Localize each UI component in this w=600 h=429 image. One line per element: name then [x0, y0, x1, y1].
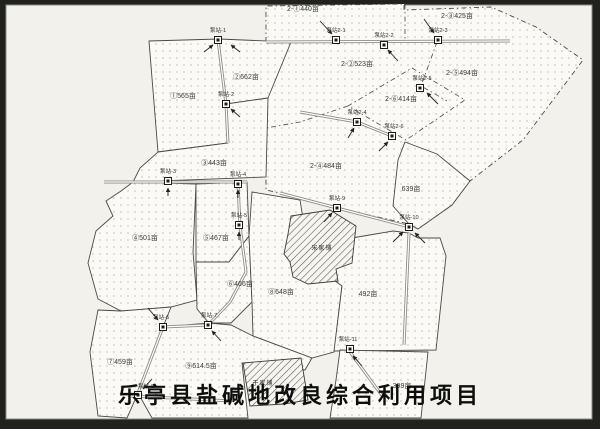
parcel-8-label: ⑧648亩 [268, 287, 294, 296]
pump-station-9-label: 泵站-9 [329, 194, 345, 202]
parcel-9-label: ⑨614.5亩 [185, 361, 217, 370]
pump-station-10-label: 泵站-10 [399, 213, 418, 221]
parcel-2-4-label: 2-④484亩 [310, 161, 342, 170]
parcel-2-5-label: 2-⑤494亩 [446, 68, 478, 77]
pump-station-6-label: 泵站-6 [153, 313, 169, 321]
pump-station-2-2-label: 泵站2-2 [374, 31, 393, 39]
parcel-2-1-label: 2-①440亩 [287, 4, 319, 13]
pump-station-1-label: 泵站-1 [210, 26, 226, 34]
parcel-3-label: ③443亩 [201, 158, 227, 167]
parcel-1-label: ①565亩 [170, 91, 196, 100]
pump-station-2-6-label: 泵站2-6 [384, 122, 403, 130]
parcel-639-label: 639亩 [402, 184, 421, 193]
land-improvement-map: 泵站-1 泵站-2 泵站-3 泵站-4 泵站-5 泵站-6 泵站-7 泵站-8 … [0, 0, 600, 429]
parcel-2-3-label: 2-③425亩 [441, 11, 473, 20]
village-songjiapu-label: 宋家铺 [311, 244, 332, 252]
pump-station-11-label: 泵站-11 [339, 335, 358, 343]
page-title: 乐亭县盐碱地改良综合利用项目 [118, 383, 482, 408]
pump-station-2-5-label: 泵站2-5 [412, 74, 431, 82]
pump-station-2-1-label: 泵站2-1 [326, 26, 345, 34]
pump-station-4-label: 泵站-4 [230, 170, 246, 178]
parcel-7-label: ⑦459亩 [107, 357, 133, 366]
parcel-5-label: ⑤467亩 [203, 233, 229, 242]
parcel-6-label: ⑥466亩 [227, 279, 253, 288]
parcel-2-label: ②662亩 [233, 72, 259, 81]
parcel-2-2-label: 2-②523亩 [341, 59, 373, 68]
parcel-4-label: ④501亩 [132, 233, 158, 242]
pump-station-2-3-label: 泵站2-3 [428, 26, 447, 34]
pump-station-2-label: 泵站-2 [218, 90, 234, 98]
pump-station-3-label: 泵站-3 [160, 167, 176, 175]
pump-station-5-label: 泵站-5 [231, 211, 247, 219]
parcel-492-label: 492亩 [359, 289, 378, 298]
parcel-2-6-label: 2-⑥414亩 [385, 94, 417, 103]
pump-station-7-label: 泵站-7 [201, 311, 217, 319]
scanned-map-page: 泵站-1 泵站-2 泵站-3 泵站-4 泵站-5 泵站-6 泵站-7 泵站-8 … [0, 0, 600, 429]
pump-station-2-4-label: 泵站2-4 [347, 108, 366, 116]
